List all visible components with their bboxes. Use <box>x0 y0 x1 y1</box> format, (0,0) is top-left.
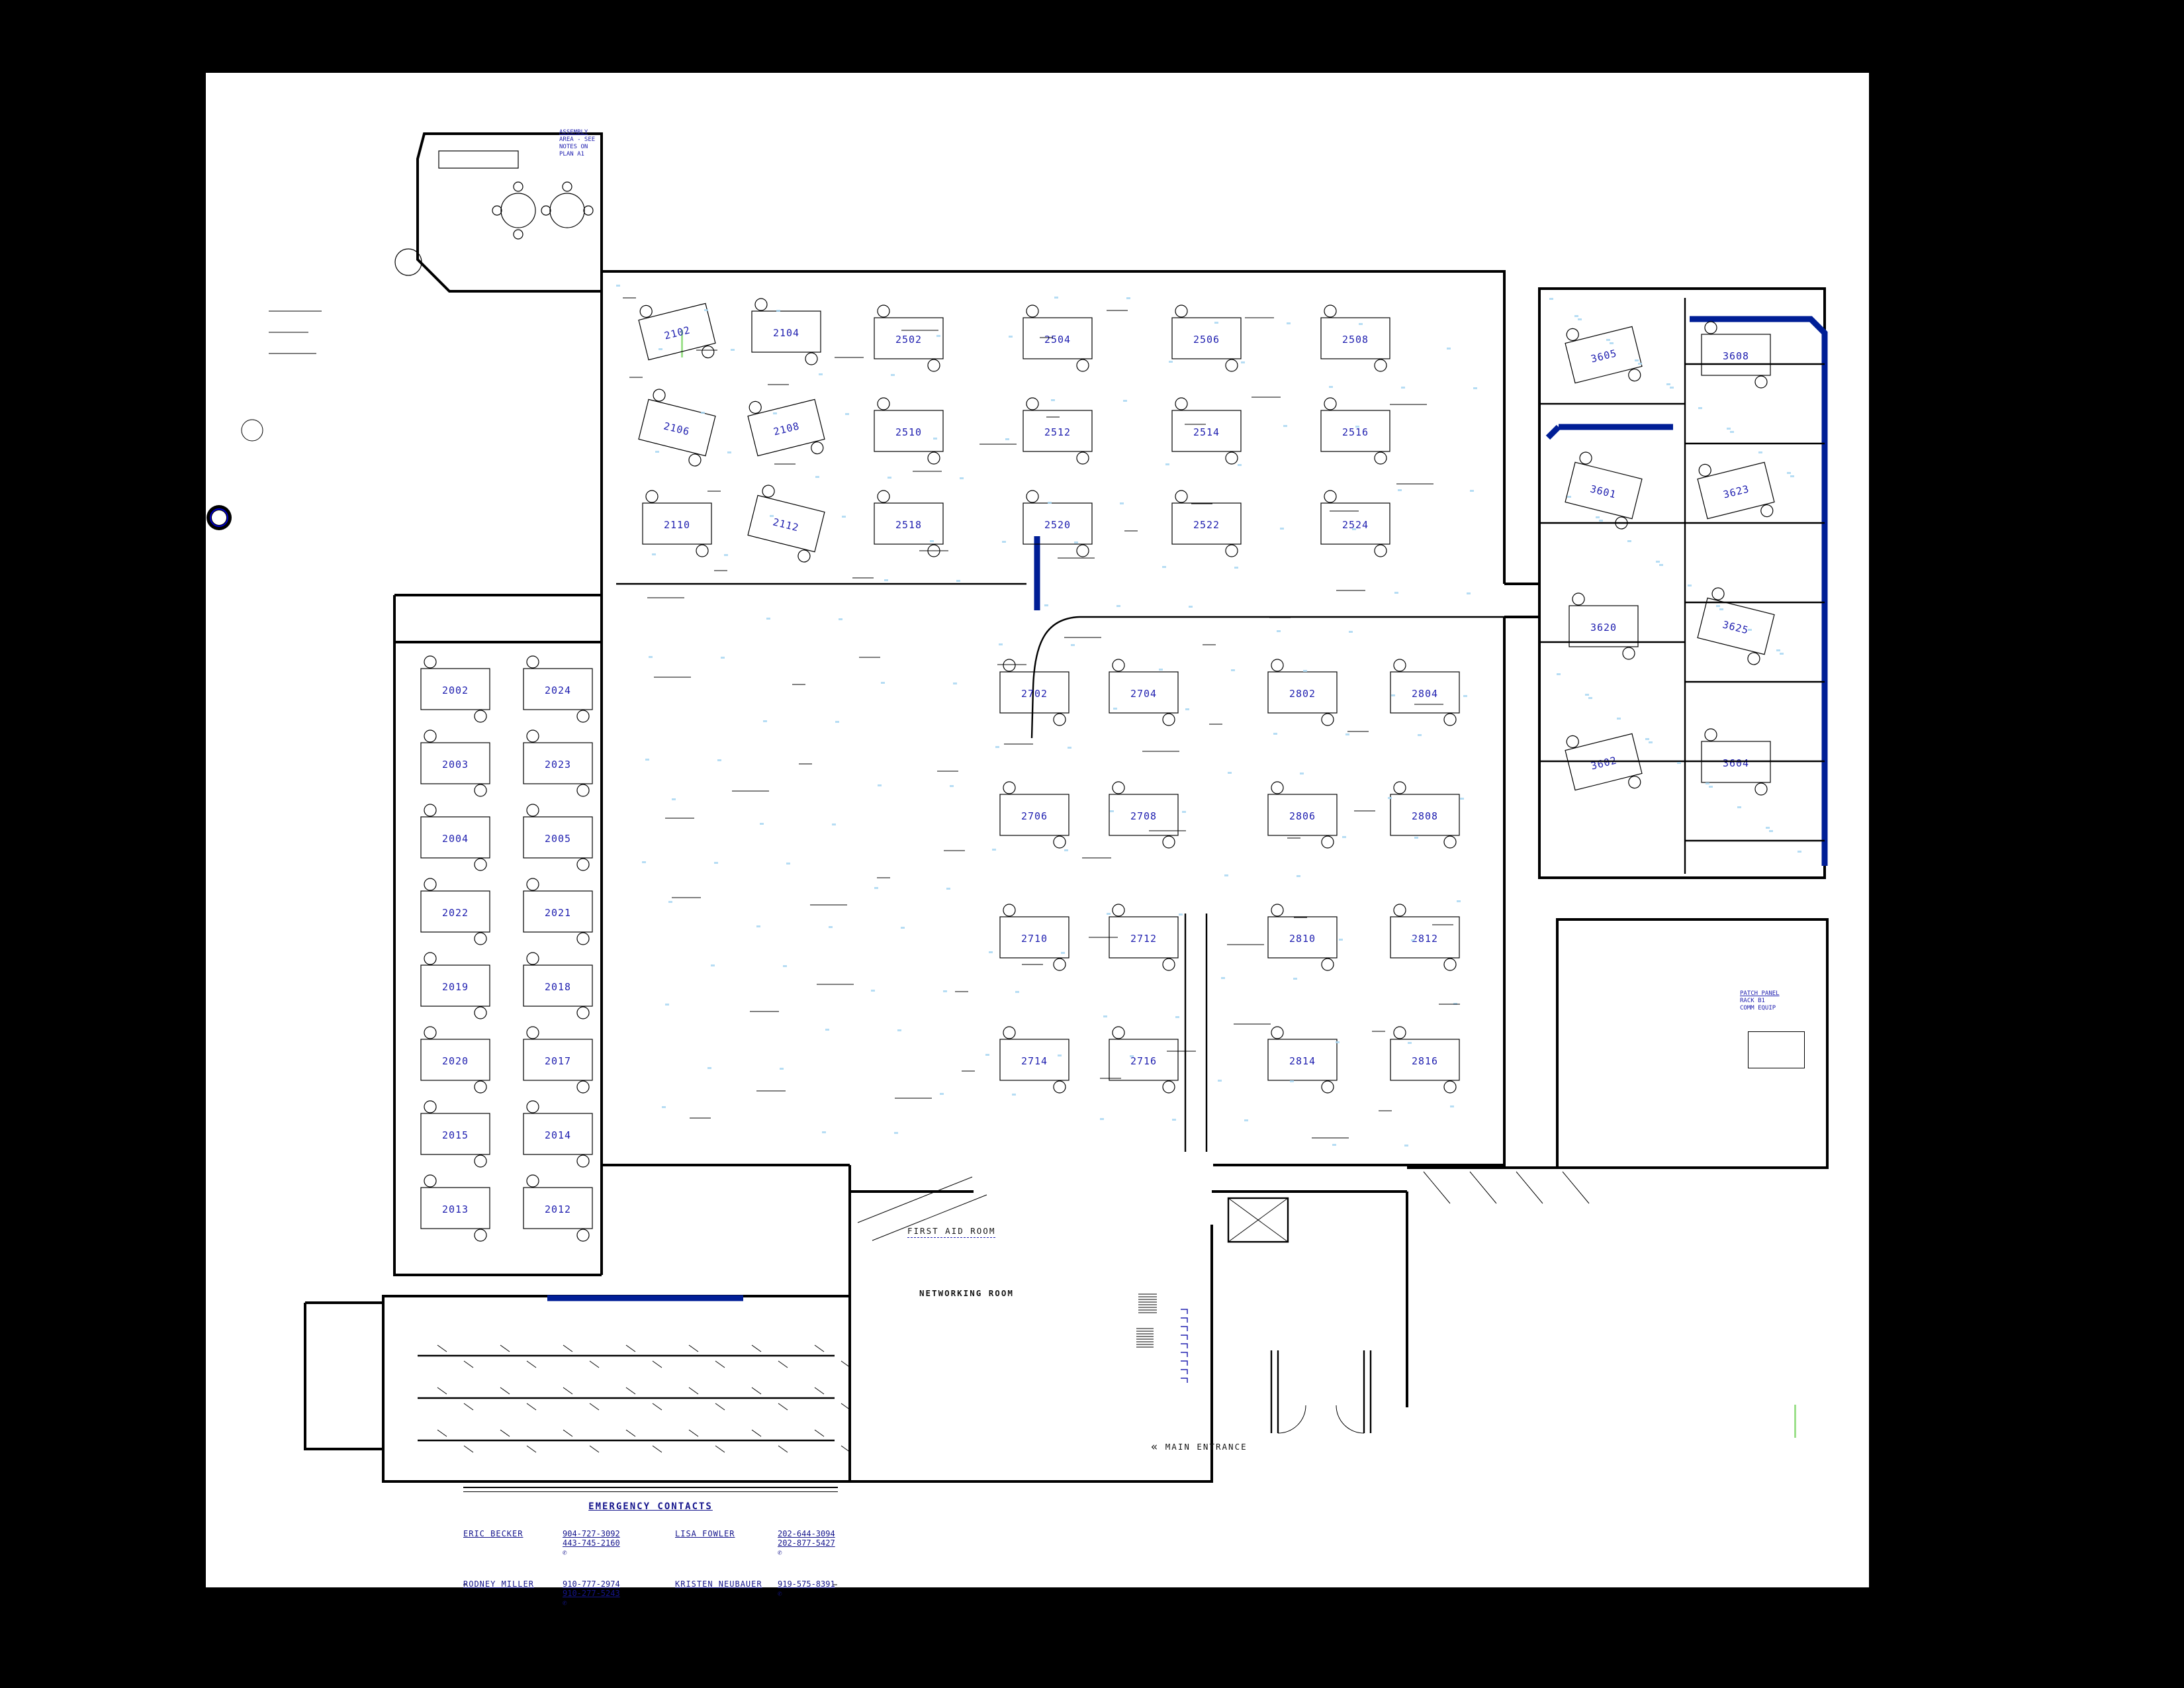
contact-phone: 919-575-8391 <box>778 1579 838 1589</box>
cubicle: 2706 <box>1000 782 1069 848</box>
room-number: 2514 <box>1193 426 1220 438</box>
plan-element <box>832 823 836 825</box>
plan-element <box>1071 644 1075 646</box>
plan-element <box>1003 904 1015 916</box>
room-number: 2022 <box>442 907 469 919</box>
margin-marks <box>242 311 322 441</box>
plan-element <box>878 305 889 317</box>
plan-element <box>985 1054 989 1056</box>
plan-element <box>1169 361 1173 363</box>
plan-element <box>1163 714 1175 726</box>
plan-element <box>1231 669 1235 671</box>
room-number: 2023 <box>545 759 571 771</box>
plan-element <box>773 412 777 414</box>
cubicle: 2104 <box>752 299 821 365</box>
cubicle: 2808 <box>1390 782 1459 848</box>
plan-element <box>901 927 905 929</box>
plan-element <box>1336 1041 1340 1043</box>
plan-element <box>527 656 539 668</box>
plan-element <box>1766 827 1770 829</box>
plan-element <box>707 1067 711 1069</box>
cubicle: 2506 <box>1172 305 1241 371</box>
plan-element <box>475 933 486 945</box>
plan-element <box>1467 592 1471 594</box>
equip-note-line: COMM EQUIP <box>1740 1005 1819 1012</box>
plan-element <box>527 1027 539 1039</box>
plan-element <box>1054 714 1066 726</box>
plan-element <box>577 1081 589 1093</box>
plan-element <box>933 438 937 440</box>
plan-element <box>1113 904 1124 916</box>
plan-element <box>1698 463 1712 478</box>
zone-top-center-field: 2502250425062508251025122514251625182520… <box>874 305 1390 557</box>
plan-element <box>475 1081 486 1093</box>
room-number: 2012 <box>545 1203 571 1215</box>
plan-element <box>1565 735 1580 749</box>
plan-element <box>842 516 846 518</box>
plan-element <box>1557 673 1561 675</box>
plan-element <box>424 878 436 890</box>
plan-element <box>475 784 486 796</box>
office-dividers <box>1539 364 1825 841</box>
equip-note-line: PATCH PANEL <box>1740 990 1819 998</box>
plan-element <box>1394 782 1406 794</box>
plan-element <box>1026 398 1038 410</box>
contact-phone: 202-877-5427 <box>778 1538 838 1548</box>
plan-element <box>1709 786 1713 788</box>
plan-element <box>992 849 996 851</box>
contact-phone: 443-745-2160 <box>563 1538 675 1548</box>
plan-element <box>688 453 702 467</box>
plan-element <box>1450 1105 1454 1107</box>
note-line: NOTES ON <box>559 144 632 151</box>
green-marks <box>681 330 1796 1438</box>
cubicle: 2004 <box>421 804 490 870</box>
walkway-marks <box>1424 1172 1589 1203</box>
plan-element <box>711 964 715 966</box>
plan-element <box>878 398 889 410</box>
plan-element <box>1322 714 1334 726</box>
plan-element <box>845 413 849 415</box>
room-number: 2110 <box>664 519 690 531</box>
plan-element <box>1677 762 1681 764</box>
plan-element <box>1271 659 1283 671</box>
plan-element <box>1780 653 1784 655</box>
cubicle: 2704 <box>1109 659 1178 726</box>
plan-element <box>1185 708 1189 710</box>
zone-upper-left-field: 210221042106210821102112 <box>635 291 827 564</box>
main-entrance-text: MAIN ENTRANCE <box>1165 1442 1248 1452</box>
plan-element <box>665 1004 669 1006</box>
plan-element <box>1572 593 1584 605</box>
room-number: 2506 <box>1193 334 1220 346</box>
plan-element <box>1324 305 1336 317</box>
plan-element <box>721 657 725 659</box>
plan-element <box>1666 383 1670 385</box>
cubicle: 2802 <box>1268 659 1337 726</box>
locker-mark <box>1181 1327 1187 1331</box>
plan-element <box>943 990 947 992</box>
note-line: PLAN A1 <box>559 151 632 158</box>
plan-element <box>1226 545 1238 557</box>
plan-element <box>1077 359 1089 371</box>
plan-element <box>1599 520 1603 522</box>
plan-element <box>1719 608 1723 610</box>
plan-element <box>1100 1118 1104 1120</box>
plan-element <box>704 309 708 311</box>
cubicle: 2510 <box>874 398 943 464</box>
plan-element <box>1026 305 1038 317</box>
plan-element <box>950 785 954 787</box>
phone-icon: ✆ <box>778 1589 782 1598</box>
plan-element <box>1394 592 1398 594</box>
cubicle: 2516 <box>1321 398 1390 464</box>
plan-element <box>1303 670 1307 672</box>
plan-element <box>1444 959 1456 970</box>
plan-element <box>577 1007 589 1019</box>
cubicle: 2814 <box>1268 1027 1337 1093</box>
plan-element <box>940 1093 944 1095</box>
plan-element <box>819 373 823 375</box>
plan-element <box>1162 566 1166 568</box>
plan-element <box>805 353 817 365</box>
plan-element <box>878 784 882 786</box>
cubicle: 2524 <box>1321 491 1390 557</box>
plan-element <box>1627 540 1631 542</box>
plan-element <box>755 299 767 310</box>
plan-element <box>1656 561 1660 563</box>
plan-element <box>639 305 653 319</box>
plan-element <box>424 953 436 964</box>
cubicle: 2712 <box>1109 904 1178 970</box>
plan-element <box>1002 541 1006 543</box>
plan-element <box>835 721 839 723</box>
plan-element <box>724 554 728 556</box>
plan-element <box>577 933 589 945</box>
plan-element <box>946 888 950 890</box>
cubicle: 3625 <box>1694 586 1777 667</box>
contact-phones: 202-644-3094 202-877-5427 ✆ <box>778 1529 838 1557</box>
plan-element <box>424 1101 436 1113</box>
plan-element <box>527 1101 539 1113</box>
phone-icon: ✆ <box>778 1548 782 1557</box>
plan-element <box>1221 977 1225 979</box>
plan-element <box>1349 631 1353 633</box>
plan-speckle <box>616 285 1801 1147</box>
plan-element <box>1271 904 1283 916</box>
room-number: 2814 <box>1289 1055 1316 1067</box>
plan-element <box>672 798 676 800</box>
plan-element <box>1228 772 1232 774</box>
cubicle: 2504 <box>1023 305 1092 371</box>
phone-icon: ✆ <box>563 1599 567 1607</box>
cubicle: 2021 <box>523 878 592 945</box>
plan-element <box>1175 1016 1179 1018</box>
locker-mark <box>1181 1352 1187 1357</box>
plan-element <box>1226 359 1238 371</box>
plan-element <box>1064 849 1068 851</box>
plan-element <box>1287 322 1291 324</box>
plan-element <box>1623 647 1635 659</box>
plan-element <box>1054 1081 1066 1093</box>
plan-element <box>475 1007 486 1019</box>
cubicle: 2024 <box>523 656 592 722</box>
contact-name: RODNEY MILLER <box>463 1579 563 1607</box>
locker-mark <box>1181 1378 1187 1383</box>
room-number: 2522 <box>1193 519 1220 531</box>
plan-element <box>1355 426 1359 428</box>
plan-element <box>1189 606 1193 608</box>
plan-element <box>1574 315 1578 317</box>
room-number: 2112 <box>772 516 800 534</box>
room-number: 2518 <box>895 519 922 531</box>
room-number: 2021 <box>545 907 571 919</box>
plan-element <box>953 682 957 684</box>
phone-icon: ✆ <box>563 1548 567 1557</box>
plan-element <box>1113 1027 1124 1039</box>
cubicle: 2708 <box>1109 782 1178 848</box>
cubicle: 2714 <box>1000 1027 1069 1093</box>
plan-element <box>1224 874 1228 876</box>
plan-element <box>1414 837 1418 839</box>
plan-element <box>887 477 891 479</box>
plan-element <box>1375 545 1387 557</box>
plan-element <box>1352 528 1356 530</box>
plan-element <box>839 618 842 620</box>
plan-element <box>475 1229 486 1241</box>
cubicle: 2112 <box>745 483 827 564</box>
plan-element <box>1727 428 1731 430</box>
plan-element <box>760 823 764 825</box>
floor-plan-drawing: 2002202420032023200420052022202120192018… <box>206 73 1869 1587</box>
plan-element <box>1698 407 1702 409</box>
plan-element <box>1706 782 1709 784</box>
plan-element <box>1293 978 1297 980</box>
stair-hatching <box>1136 1294 1187 1383</box>
cubicle: 2019 <box>421 953 490 1019</box>
plan-element <box>1645 738 1649 740</box>
plan-element <box>1329 386 1333 388</box>
plan-element <box>616 285 620 287</box>
plan-element <box>475 710 486 722</box>
contact-phone: 910-277-5243 <box>563 1589 675 1598</box>
cubicle: 2003 <box>421 730 490 796</box>
legend-rule <box>463 1487 838 1492</box>
room-number: 2510 <box>895 426 922 438</box>
room-number: 2712 <box>1130 933 1157 945</box>
room-number: 2019 <box>442 981 469 993</box>
room-number: 2512 <box>1044 426 1071 438</box>
room-number: 2806 <box>1289 810 1316 822</box>
locker-mark <box>1181 1370 1187 1374</box>
cubicle: 2514 <box>1172 398 1241 464</box>
plan-element <box>1747 651 1761 666</box>
cubicle: 2023 <box>523 730 592 796</box>
plan-element <box>1659 564 1663 566</box>
plan-element <box>1345 733 1349 735</box>
plan-element <box>1391 694 1395 696</box>
plan-element <box>1297 875 1300 877</box>
room-number: 2502 <box>895 334 922 346</box>
plan-element <box>1388 797 1392 799</box>
training-room-tables <box>418 1356 835 1440</box>
room-number: 2816 <box>1412 1055 1438 1067</box>
plan-element <box>1748 629 1752 631</box>
plan-element <box>1758 451 1762 453</box>
cubicle: 2816 <box>1390 1027 1459 1093</box>
room-number: 2108 <box>772 420 801 438</box>
plan-element <box>1003 1027 1015 1039</box>
plan-element <box>1549 298 1553 300</box>
plan-element <box>797 549 811 563</box>
plan-element <box>1113 659 1124 671</box>
plan-element <box>1394 659 1406 671</box>
plan-element <box>1627 775 1642 790</box>
plan-element <box>1769 830 1773 832</box>
room-number: 2704 <box>1130 688 1157 700</box>
locker-mark <box>1181 1335 1187 1340</box>
plan-element <box>960 477 964 479</box>
plan-element <box>662 1106 666 1108</box>
break-room-furniture <box>395 151 593 275</box>
plan-element <box>1009 336 1013 338</box>
plan-element <box>642 861 646 863</box>
plan-element <box>717 759 721 761</box>
plan-element <box>1705 322 1717 334</box>
plan-element <box>1463 695 1467 697</box>
cubicle: 2018 <box>523 953 592 1019</box>
plan-element <box>1588 697 1592 699</box>
cubicle: 2102 <box>635 291 718 372</box>
contact-phone: 910-777-2974 <box>563 1579 675 1589</box>
room-number: 2002 <box>442 684 469 696</box>
cubicle: 3620 <box>1569 593 1638 659</box>
cubicle: 2812 <box>1390 904 1459 970</box>
room-number: 3608 <box>1723 350 1749 362</box>
plan-element <box>1241 361 1245 363</box>
plan-element <box>1585 694 1589 696</box>
plan-element <box>1322 1081 1334 1093</box>
plan-element <box>1175 305 1187 317</box>
plan-element <box>1610 342 1614 344</box>
plan-element <box>1444 1081 1456 1093</box>
room-number: 2024 <box>545 684 571 696</box>
plan-element <box>1404 1145 1408 1147</box>
plan-element <box>1165 463 1169 465</box>
plan-element <box>1126 297 1130 299</box>
plan-element <box>1283 425 1287 427</box>
zone-left-room: 2002202420032023200420052022202120192018… <box>421 656 592 1241</box>
plan-element <box>527 804 539 816</box>
plan-element <box>1760 504 1774 518</box>
floor-plan-sheet: 2002202420032023200420052022202120192018… <box>206 73 1869 1587</box>
plan-element <box>878 491 889 502</box>
plan-element <box>783 965 787 967</box>
room-number: 2714 <box>1021 1055 1048 1067</box>
cubicle: 2020 <box>421 1027 490 1093</box>
generated-plan-content: 2002202420032023200420052022202120192018… <box>421 285 1825 1452</box>
plan-element <box>1649 741 1653 743</box>
plan-element <box>1322 836 1334 848</box>
plan-element <box>780 1068 784 1070</box>
plan-element <box>696 545 708 557</box>
plan-element <box>649 656 653 658</box>
room-number: 2014 <box>545 1129 571 1141</box>
plan-element <box>928 452 940 464</box>
plan-element <box>1214 322 1218 324</box>
room-number: 3604 <box>1723 757 1749 769</box>
plan-element <box>1565 328 1580 342</box>
plan-element <box>748 400 762 415</box>
room-number: 2708 <box>1130 810 1157 822</box>
plan-element <box>1578 451 1593 465</box>
cubicle: 2106 <box>635 387 718 468</box>
cubicle: 2110 <box>643 491 711 557</box>
cubicle: 2716 <box>1109 1027 1178 1093</box>
cubicle: 2015 <box>421 1101 490 1167</box>
plan-element <box>1324 491 1336 502</box>
plan-element <box>786 863 790 865</box>
plan-element <box>761 484 776 498</box>
cubicle: 2012 <box>523 1175 592 1241</box>
plan-element <box>652 388 666 402</box>
plan-element <box>1123 400 1127 402</box>
legend-title: EMERGENCY CONTACTS <box>463 1501 838 1512</box>
plan-element <box>822 1131 826 1133</box>
plan-element <box>776 310 780 312</box>
plan-element <box>1226 452 1238 464</box>
plan-element <box>652 553 656 555</box>
contact-phone: 904-727-3092 <box>563 1529 675 1538</box>
plan-element <box>1617 718 1621 720</box>
cubicle: 2005 <box>523 804 592 870</box>
zone-central-pods: 27022704270627082710271227142716 <box>1000 659 1178 1093</box>
plan-element <box>701 412 705 414</box>
networking-room-label: NETWORKING ROOM <box>919 1288 1014 1298</box>
plan-element <box>1077 545 1089 557</box>
plan-element <box>577 1229 589 1241</box>
cubicle: 2810 <box>1268 904 1337 970</box>
equip-note-line: RACK B1 <box>1740 998 1819 1005</box>
plan-element <box>1116 605 1120 607</box>
plan-element <box>1234 567 1238 569</box>
plan-element <box>1061 952 1065 954</box>
plan-element <box>1755 783 1767 795</box>
plan-element <box>1054 959 1066 970</box>
cubicle: 2804 <box>1390 659 1459 726</box>
plan-element <box>1401 387 1405 389</box>
plan-element <box>1705 729 1717 741</box>
plan-element <box>1411 939 1415 941</box>
plan-element <box>1077 452 1089 464</box>
plan-element <box>424 730 436 742</box>
plan-element <box>1271 782 1283 794</box>
room-number: 2812 <box>1412 933 1438 945</box>
plan-element <box>766 618 770 620</box>
locker-mark <box>1181 1309 1187 1314</box>
plan-element <box>1058 1055 1062 1056</box>
room-number: 2017 <box>545 1055 571 1067</box>
contact-name: LISA FOWLER <box>675 1529 778 1557</box>
cubicle: 2002 <box>421 656 490 722</box>
cubicle: 3623 <box>1694 450 1777 531</box>
plan-element <box>1359 323 1363 325</box>
room-number: 2808 <box>1412 810 1438 822</box>
note-line: AREA - SEE <box>559 136 632 144</box>
room-number: 2004 <box>442 833 469 845</box>
cubicle: 2108 <box>745 387 827 468</box>
room-number: 2003 <box>442 759 469 771</box>
